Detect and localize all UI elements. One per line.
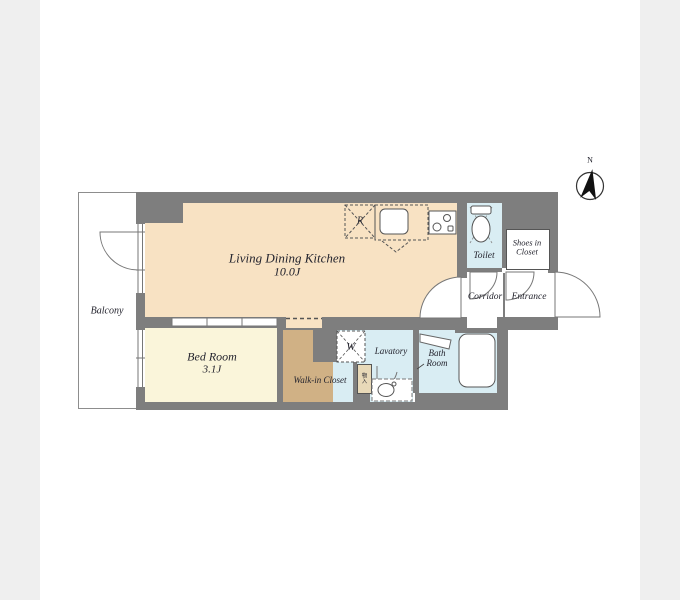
sliding-door-bedroom: [172, 318, 277, 326]
toilet-fixture: [470, 206, 492, 243]
ldk-door: [420, 277, 461, 318]
shoes-closet-label: Shoes in Closet: [513, 239, 542, 258]
ldk-label: Living Dining Kitchen 10.0J: [229, 251, 345, 278]
balcony-door: [100, 232, 138, 270]
bedroom-label-name: Bed Room: [187, 350, 237, 363]
north-arrow-icon: [577, 168, 604, 200]
stove: [429, 211, 456, 234]
shoes-closet-label-line2: Closet: [513, 248, 542, 257]
kitchen-sink: [375, 205, 428, 252]
ldk-label-size: 10.0J: [229, 266, 345, 279]
bathroom-door: [420, 334, 451, 349]
corridor-label: Corridor: [468, 292, 502, 302]
bathroom-label-line2: Room: [427, 359, 448, 369]
balcony-label: Balcony: [91, 306, 124, 317]
lavatory-label: Lavatory: [375, 347, 408, 357]
entrance-label: Entrance: [512, 292, 547, 302]
bathroom-label: Bath Room: [427, 349, 448, 369]
refrigerator-mark-label: R: [357, 216, 363, 227]
bedroom-label-size: 3.1J: [187, 364, 237, 376]
bathtub: [459, 334, 495, 387]
entrance-door: [555, 272, 600, 317]
toilet-label: Toilet: [473, 251, 494, 261]
walk-in-closet-label: Walk-in Closet: [294, 376, 347, 386]
storage-mark-label: 物入: [360, 373, 366, 384]
bedroom-window: [136, 330, 145, 387]
bedroom-label: Bed Room 3.1J: [187, 350, 237, 375]
washer-mark-label: W: [346, 341, 355, 353]
ldk-label-name: Living Dining Kitchen: [229, 251, 345, 265]
washbasin: [372, 379, 412, 401]
north-label: N: [587, 157, 593, 166]
bath-label-leader: [417, 364, 424, 369]
floorplan-canvas: Balcony Living Dining Kitchen 10.0J Bed …: [0, 0, 680, 600]
